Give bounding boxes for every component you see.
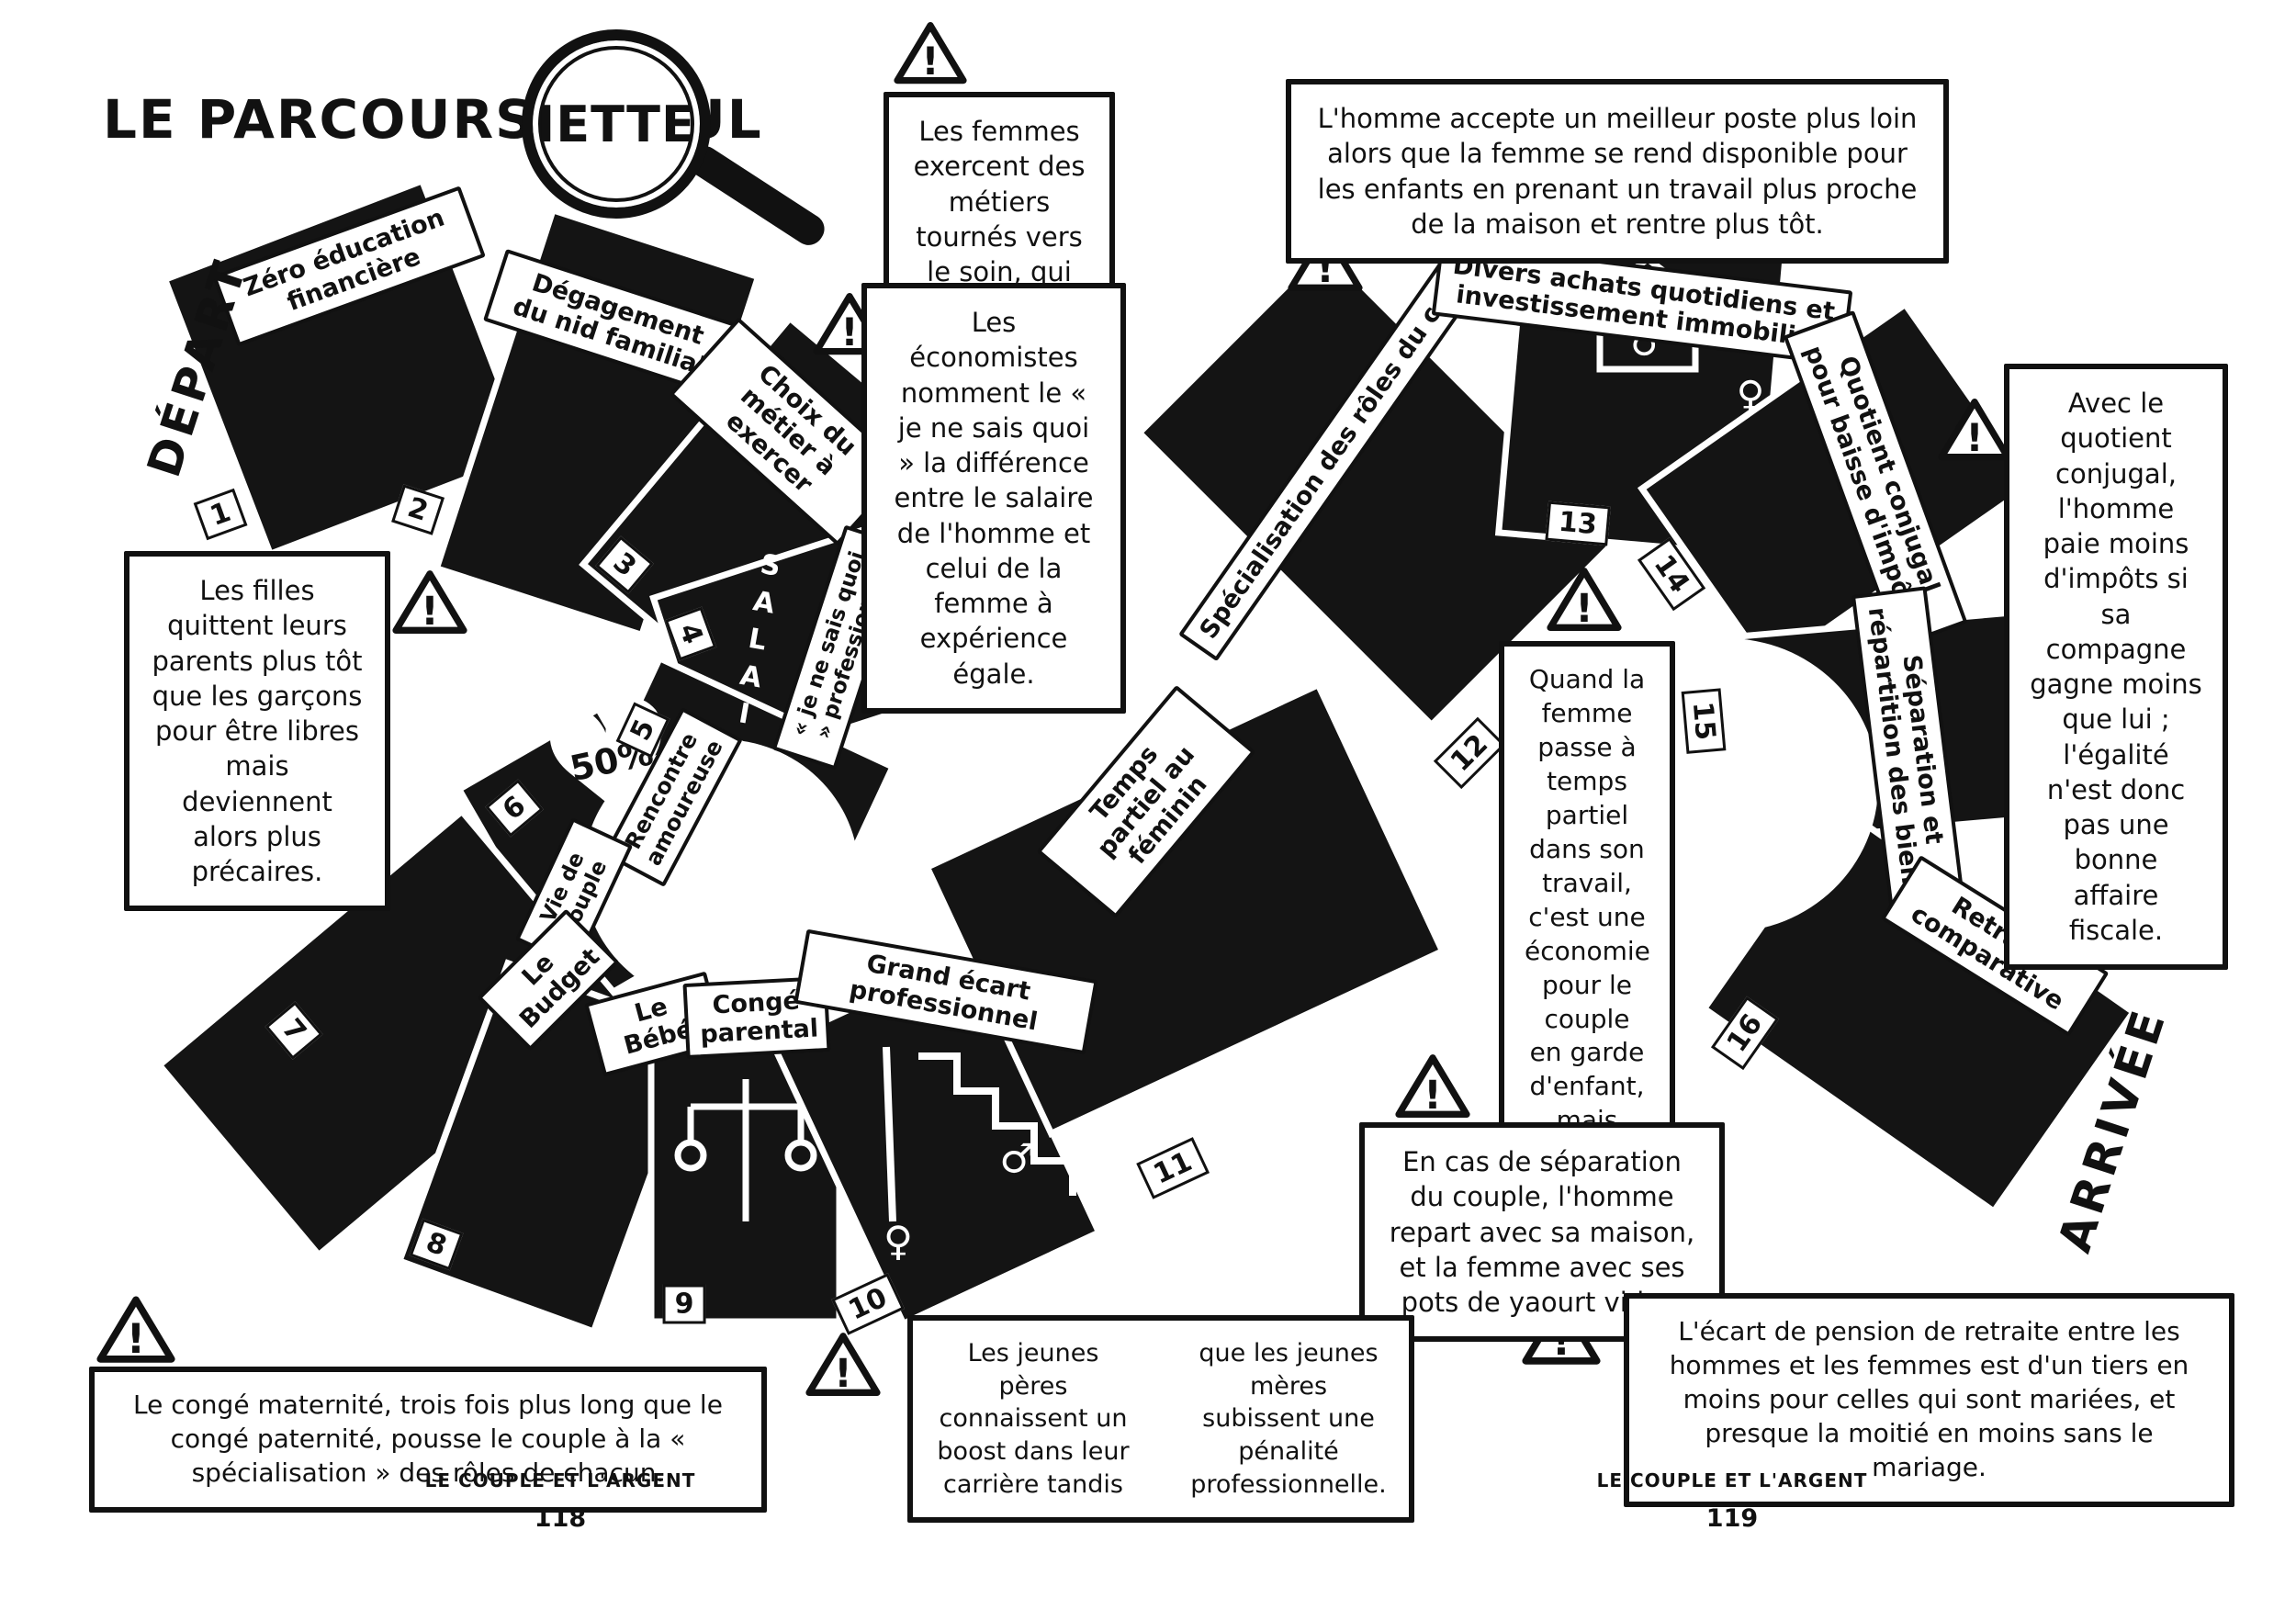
warning-icon: !: [1547, 566, 1622, 637]
svg-text:!: !: [1424, 1073, 1441, 1119]
footer-left: LE COUPLE ET L'ARGENT 118: [425, 1469, 696, 1533]
footer-caption: LE COUPLE ET L'ARGENT: [1597, 1469, 1868, 1491]
footer-caption: LE COUPLE ET L'ARGENT: [425, 1469, 696, 1491]
female-icon: ♀: [884, 1219, 913, 1266]
footer-page-number: 119: [1597, 1504, 1868, 1533]
warning-box-economistes: Les économistes nomment le « je ne sais …: [861, 283, 1126, 714]
warning-box-jeunes-parents: Les jeunes pères connaissent un boost da…: [907, 1315, 1414, 1523]
female-icon: ♀: [1737, 373, 1765, 418]
warning-box-quotient-conjugal: Avec le quotient conjugal, l'homme paie …: [2004, 364, 2228, 970]
tile-number-9: 9: [663, 1285, 706, 1324]
footer-page-number: 118: [425, 1504, 696, 1533]
warning-icon: !: [894, 20, 967, 90]
svg-text:!: !: [922, 39, 940, 84]
svg-text:!: !: [1575, 586, 1593, 632]
svg-text:!: !: [834, 1351, 851, 1397]
magnifier-icon: IETTE: [522, 29, 711, 219]
warning-icon: !: [1938, 397, 2011, 467]
comic-page: ♂ ♀ ♂ ♀ ♥ 50% Zéro éducation financière …: [0, 0, 2296, 1598]
warning-icon: !: [1395, 1052, 1470, 1124]
footer-right: LE COUPLE ET L'ARGENT 119: [1597, 1469, 1868, 1533]
warning-text-meres: que les jeunes mères subissent une pénal…: [1188, 1337, 1389, 1501]
svg-text:!: !: [841, 309, 859, 354]
warning-icon: !: [392, 568, 467, 640]
warning-icon: !: [96, 1294, 175, 1369]
tile-number-13: 13: [1545, 501, 1610, 546]
svg-text:!: !: [1966, 415, 1984, 460]
warning-icon: !: [805, 1331, 881, 1402]
warning-box-filles-quittent: Les filles quittent leurs parents plus t…: [124, 551, 390, 911]
page-title-magnified: IETTE: [536, 96, 696, 153]
warning-box-meilleur-poste: L'homme accepte un meilleur poste plus l…: [1286, 79, 1949, 264]
svg-text:!: !: [127, 1314, 145, 1363]
warning-text-peres: Les jeunes pères connaissent un boost da…: [933, 1337, 1133, 1501]
male-icon: ♂: [999, 1136, 1035, 1183]
svg-text:!: !: [421, 589, 438, 635]
tile-number-15: 15: [1682, 688, 1727, 753]
